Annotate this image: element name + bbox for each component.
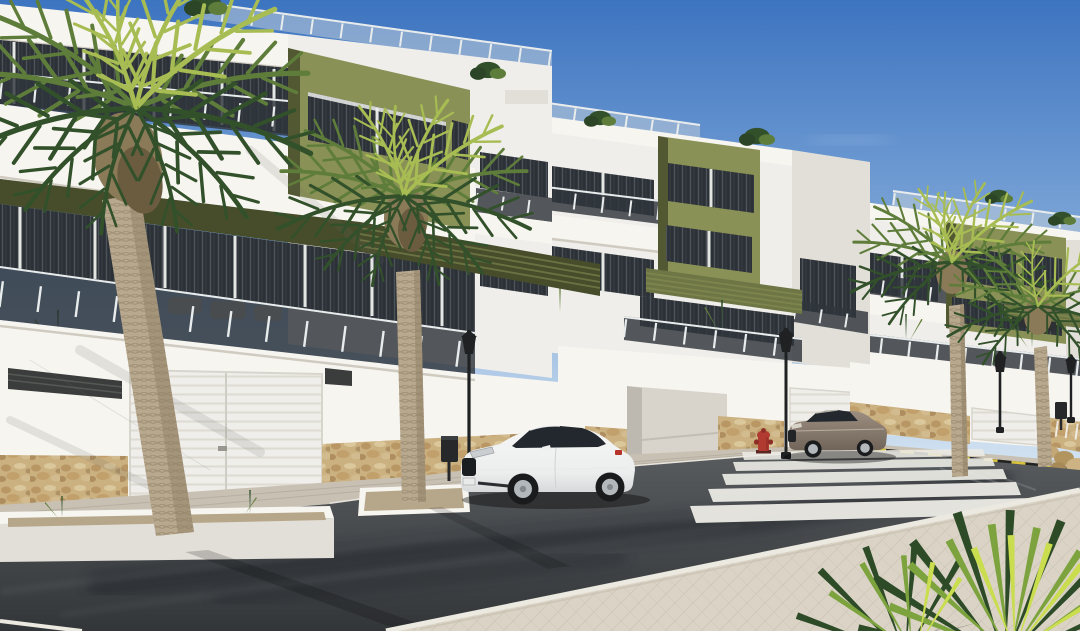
car-taillight <box>615 450 622 455</box>
door-handle <box>218 446 227 451</box>
vent-grille <box>325 368 352 386</box>
car-shadow <box>784 451 896 464</box>
rendered-photo: Sunny exterior render of a modern three-… <box>0 0 1080 631</box>
rooftop-box <box>505 90 548 104</box>
scene-canvas <box>0 0 1080 631</box>
driveway-ramp <box>627 386 727 458</box>
car-grille <box>462 458 476 476</box>
rooftop-shrub <box>184 0 228 16</box>
cloud-wisp <box>805 135 895 145</box>
license-plate <box>463 478 475 485</box>
